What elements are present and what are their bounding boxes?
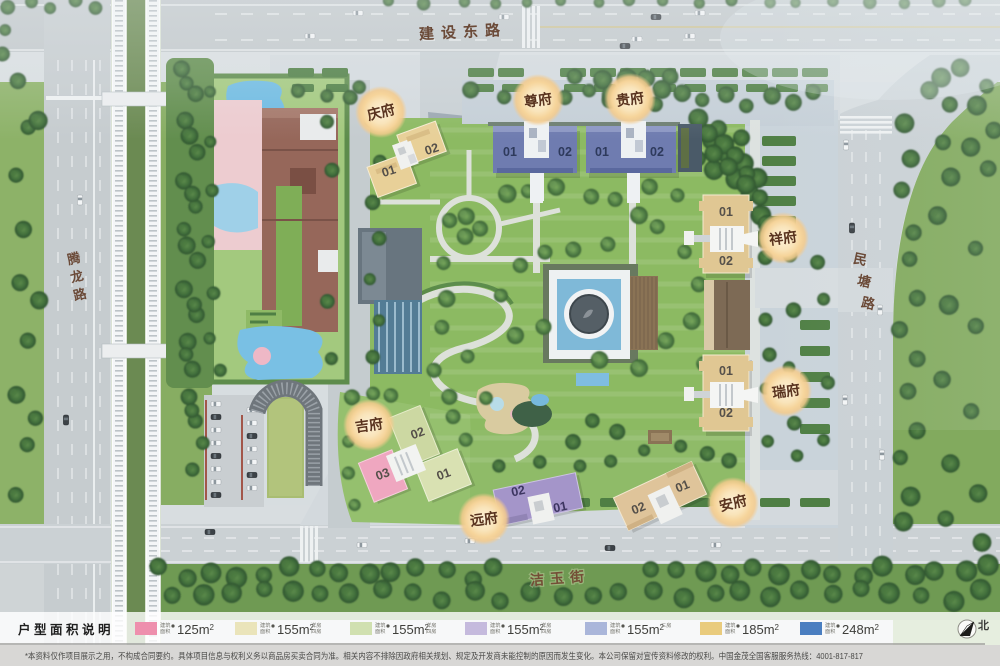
svg-text:洋房: 洋房	[311, 621, 321, 629]
svg-text:四房: 四房	[426, 627, 436, 635]
svg-text:四房: 四房	[541, 627, 551, 635]
svg-text:面积: 面积	[260, 628, 270, 635]
svg-text:155m2: 155m2	[627, 622, 665, 637]
svg-text:155m2: 155m2	[392, 622, 430, 637]
svg-text:面积: 面积	[490, 628, 500, 635]
svg-text:建筑: 建筑	[825, 621, 836, 629]
svg-text:建筑: 建筑	[725, 621, 736, 629]
svg-text:02: 02	[719, 406, 733, 420]
svg-text:面积: 面积	[825, 628, 835, 635]
svg-text:面积: 面积	[375, 628, 385, 635]
svg-text:01: 01	[595, 145, 609, 159]
svg-text:185m2: 185m2	[742, 622, 780, 637]
svg-text:面积: 面积	[160, 628, 170, 635]
svg-text:155m2: 155m2	[507, 622, 545, 637]
svg-text:户型面积说明: 户型面积说明	[18, 622, 114, 637]
svg-text:02: 02	[719, 254, 733, 268]
svg-text:01: 01	[719, 364, 733, 378]
svg-text:02: 02	[650, 145, 664, 159]
svg-text:125m2: 125m2	[177, 622, 215, 637]
svg-text:建筑: 建筑	[260, 621, 271, 629]
svg-text:248m2: 248m2	[842, 622, 880, 637]
svg-text:三房: 三房	[661, 621, 671, 629]
svg-text:北: 北	[978, 618, 989, 632]
svg-text:01: 01	[552, 499, 569, 516]
svg-text:建筑: 建筑	[160, 621, 171, 629]
svg-text:洋房: 洋房	[541, 621, 551, 629]
svg-text:面积: 面积	[610, 628, 620, 635]
svg-text:建筑: 建筑	[610, 621, 621, 629]
svg-text:洋房: 洋房	[426, 621, 436, 629]
svg-text:*本资料仅作项目展示之用，不构成合同要约。具体项目信息与权利: *本资料仅作项目展示之用，不构成合同要约。具体项目信息与权利义务以商品房买卖合同…	[25, 651, 863, 661]
svg-text:02: 02	[510, 483, 527, 500]
svg-text:01: 01	[719, 205, 733, 219]
svg-text:155m2: 155m2	[277, 622, 315, 637]
svg-text:面积: 面积	[725, 628, 735, 635]
svg-text:02: 02	[558, 145, 572, 159]
svg-text:建筑: 建筑	[490, 621, 501, 629]
svg-text:01: 01	[503, 145, 517, 159]
svg-text:四房: 四房	[311, 627, 321, 635]
svg-text:建筑: 建筑	[375, 621, 386, 629]
